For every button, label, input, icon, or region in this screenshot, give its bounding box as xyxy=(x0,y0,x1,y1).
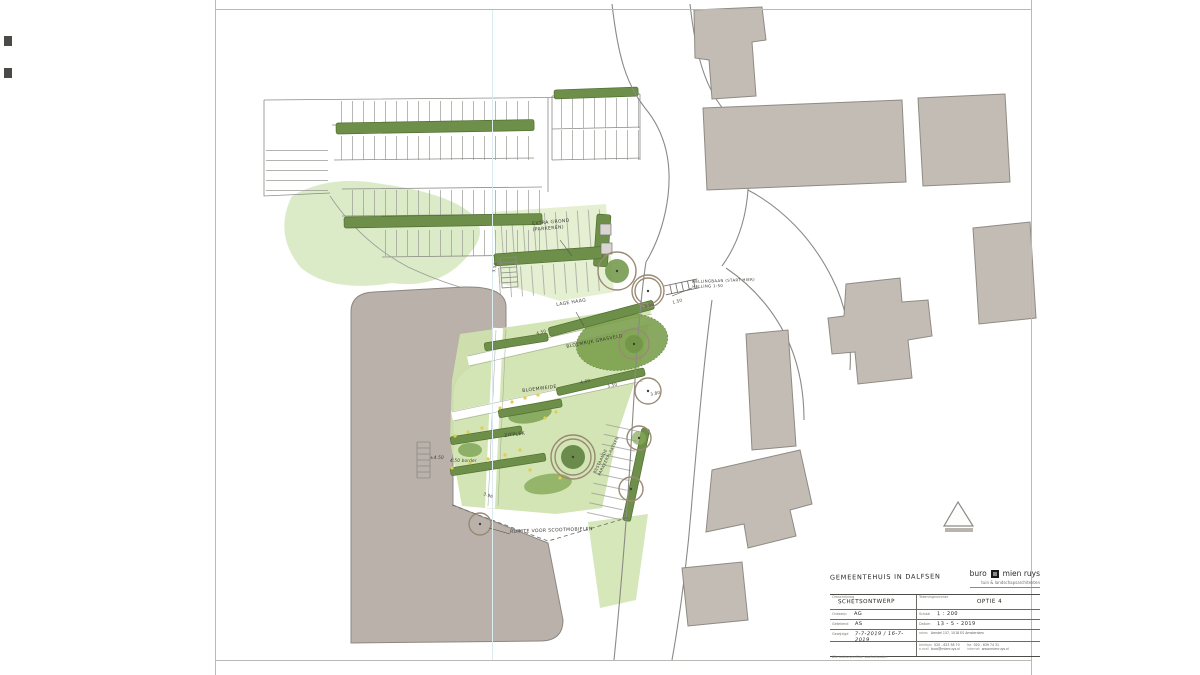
building-footprint xyxy=(703,100,906,190)
getekend-label: Getekend xyxy=(832,623,848,627)
scanned-site-plan-sheet: EXTRA GROND (PARKEREN) LAGE HAAG HELLING… xyxy=(0,0,1200,675)
internet-label: internet xyxy=(967,647,980,651)
existing-buildings xyxy=(682,7,1036,626)
lawn-strip-south xyxy=(588,514,648,608)
flower-dot xyxy=(558,476,561,479)
copyright-note: Alle auteursrechten voorbehouden xyxy=(832,653,887,659)
scan-artifact xyxy=(4,68,12,78)
email-label: e-mail xyxy=(919,647,929,651)
building-footprint xyxy=(918,94,1010,186)
row-copyright-contact: Alle auteursrechten voorbehouden telefoo… xyxy=(830,642,1040,656)
email-value: buro@mienruys.nl xyxy=(931,647,960,651)
datum-label: Datum xyxy=(919,623,930,627)
scan-artifact xyxy=(4,36,12,46)
building-footprint xyxy=(694,7,766,99)
row-ontwerp-schaal: Ontwerp AG Schaal 1 : 200 xyxy=(830,610,1040,620)
flower-dot xyxy=(536,393,539,396)
title-block-header: GEMEENTEHUIS IN DALFSEN buro mien ruys t… xyxy=(830,566,1040,594)
adres-label: adres xyxy=(919,631,928,635)
dimension-label: ±4.50 xyxy=(430,456,444,461)
parking-row-side xyxy=(266,150,328,194)
flower-dot xyxy=(466,430,469,433)
building-footprint xyxy=(682,562,748,626)
planter-square xyxy=(601,243,612,254)
logo-subtitle: tuin & landschapsarchitekten xyxy=(970,578,1040,588)
cell-tekeningnummer: Tekeningnummer OPTIE 4 xyxy=(916,595,1040,609)
cell-copyright: Alle auteursrechten voorbehouden xyxy=(830,642,916,656)
building-footprint xyxy=(706,450,812,548)
cell-gewijzigd: Gewijzigd 7-7-2019 / 16-7-2019 xyxy=(830,630,916,641)
internet-value: www.mienruys.nl xyxy=(982,647,1009,651)
gewijzigd-value: 7-7-2019 / 16-7-2019 xyxy=(851,630,914,643)
datum-value: 13 - 5 - 2019 xyxy=(933,620,976,626)
flower-dot xyxy=(450,466,453,469)
flower-dot xyxy=(554,410,557,413)
flower-dot xyxy=(486,457,489,460)
flower-dot xyxy=(498,406,501,409)
hedge-strip xyxy=(554,87,638,99)
schaal-value: 1 : 200 xyxy=(933,610,958,616)
building-footprint xyxy=(746,330,796,450)
firm-logo: buro mien ruys tuin & landschapsarchitek… xyxy=(970,566,1040,588)
flower-dot xyxy=(518,448,521,451)
parking-block-east xyxy=(552,130,640,160)
logo-mark-icon xyxy=(991,570,999,578)
omschrijving-value: SCHETSONTWERP xyxy=(832,599,914,606)
logo-word2: mien ruys xyxy=(1003,569,1040,578)
flower-dot xyxy=(480,426,483,429)
project-title: GEMEENTEHUIS IN DALFSEN xyxy=(830,565,941,581)
row-getekend-datum: Getekend AS Datum 13 - 5 - 2019 xyxy=(830,620,1040,630)
getekend-value: AS xyxy=(851,620,863,626)
cell-ontwerp: Ontwerp AG xyxy=(830,610,916,619)
building-footprint-cross xyxy=(828,278,932,384)
tekeningnummer-value: OPTIE 4 xyxy=(919,599,1038,606)
flower-dot xyxy=(510,400,513,403)
north-arrow-icon xyxy=(944,502,973,532)
cell-omschrijving: Omschrijving SCHETSONTWERP xyxy=(830,595,916,609)
planter-square xyxy=(600,224,611,235)
flower-dot xyxy=(453,434,456,437)
ontwerp-label: Ontwerp xyxy=(832,613,847,617)
parking-block-east xyxy=(552,98,640,128)
cell-schaal: Schaal 1 : 200 xyxy=(916,610,1040,619)
row-omschrijving: Omschrijving SCHETSONTWERP Tekeningnumme… xyxy=(830,595,1040,610)
schaal-label: Schaal xyxy=(919,613,930,617)
title-block-grid: Omschrijving SCHETSONTWERP Tekeningnumme… xyxy=(830,594,1040,657)
dimension-label: 4.50 border xyxy=(450,459,477,464)
cell-datum: Datum 13 - 5 - 2019 xyxy=(916,620,1040,629)
title-block: GEMEENTEHUIS IN DALFSEN buro mien ruys t… xyxy=(830,566,1040,650)
shrub-blob xyxy=(458,443,482,457)
parking-row xyxy=(342,190,542,216)
logo-word1: buro xyxy=(970,569,987,578)
building-footprint xyxy=(973,222,1036,324)
parking-row xyxy=(334,136,534,160)
adres-value: Amstel 157, 1018 ES Amsterdam xyxy=(931,631,984,635)
flower-dot xyxy=(543,416,546,419)
cell-contact: telefoon020 - 623 58 70 fax020 - 639 74 … xyxy=(916,642,1040,656)
flower-dot xyxy=(503,453,506,456)
gewijzigd-label: Gewijzigd xyxy=(832,633,848,637)
row-gewijzigd-adres: Gewijzigd 7-7-2019 / 16-7-2019 adres Ams… xyxy=(830,630,1040,642)
cell-getekend: Getekend AS xyxy=(830,620,916,629)
cell-adres: adres Amstel 157, 1018 ES Amsterdam xyxy=(916,630,1040,641)
ontwerp-value: AG xyxy=(850,610,862,616)
flower-dot xyxy=(523,396,526,399)
flower-dot xyxy=(528,468,531,471)
